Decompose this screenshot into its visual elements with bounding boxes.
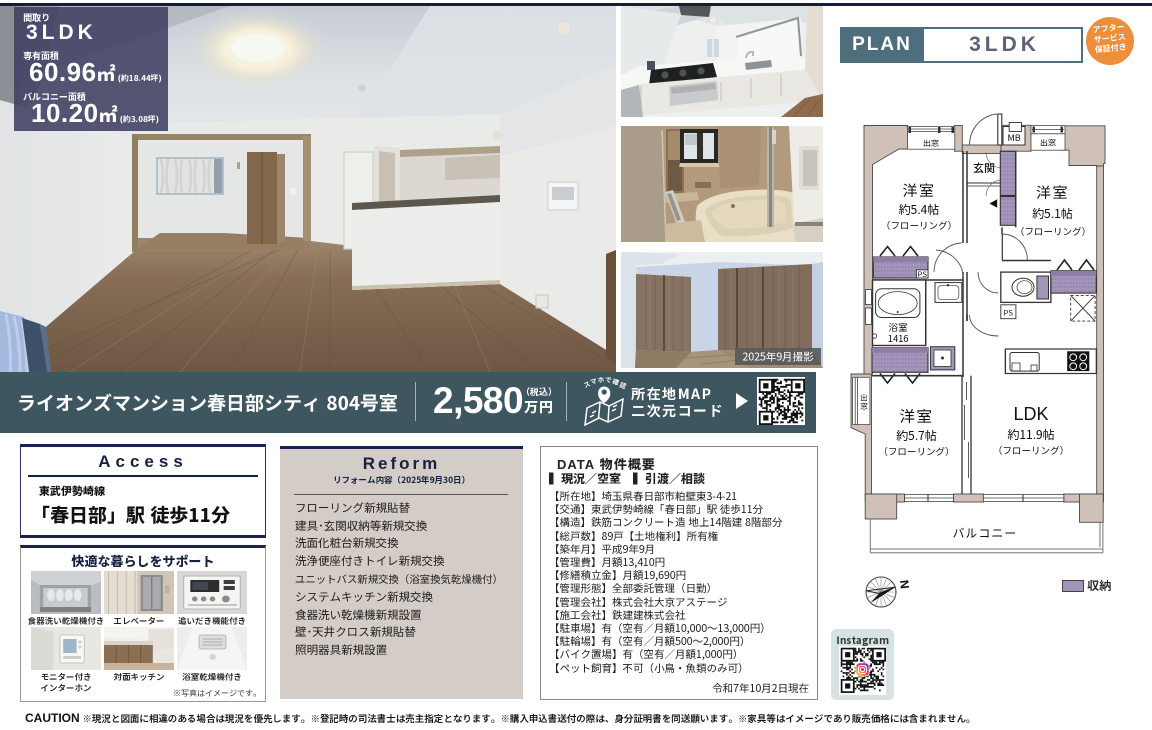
svg-text:PS: PS [1003,308,1012,319]
svg-text:約5.7帖: 約5.7帖 [896,427,937,444]
svg-text:出窓: 出窓 [859,394,870,411]
svg-text:2025年9月撮影: 2025年9月撮影 [742,350,814,365]
svg-text:PS: PS [917,269,926,280]
svg-text:出窓: 出窓 [1040,138,1056,149]
svg-text:で: で [605,377,612,384]
svg-text:出窓: 出窓 [923,138,939,149]
svg-text:洋室: 洋室 [899,405,933,427]
svg-text:約11.9帖: 約11.9帖 [1007,426,1054,443]
svg-text:玄関: 玄関 [973,160,995,176]
svg-text:（フローリング）: （フローリング） [881,218,957,232]
svg-text:1416: 1416 [887,331,908,345]
svg-text:MB: MB [1007,131,1020,144]
svg-text:洋室: 洋室 [1036,182,1069,203]
svg-text:洋室: 洋室 [902,180,935,201]
svg-text:（フローリング）: （フローリング） [878,444,954,458]
svg-text:N: N [897,579,912,589]
svg-text:認: 認 [618,379,628,391]
svg-text:バルコニー: バルコニー [952,525,1017,542]
svg-text:約5.1帖: 約5.1帖 [1032,205,1073,222]
svg-text:（フローリング）: （フローリング） [1015,224,1091,238]
svg-text:約5.4帖: 約5.4帖 [899,201,940,218]
svg-text:LDK: LDK [1013,404,1048,424]
svg-text:（フローリング）: （フローリング） [993,443,1069,457]
